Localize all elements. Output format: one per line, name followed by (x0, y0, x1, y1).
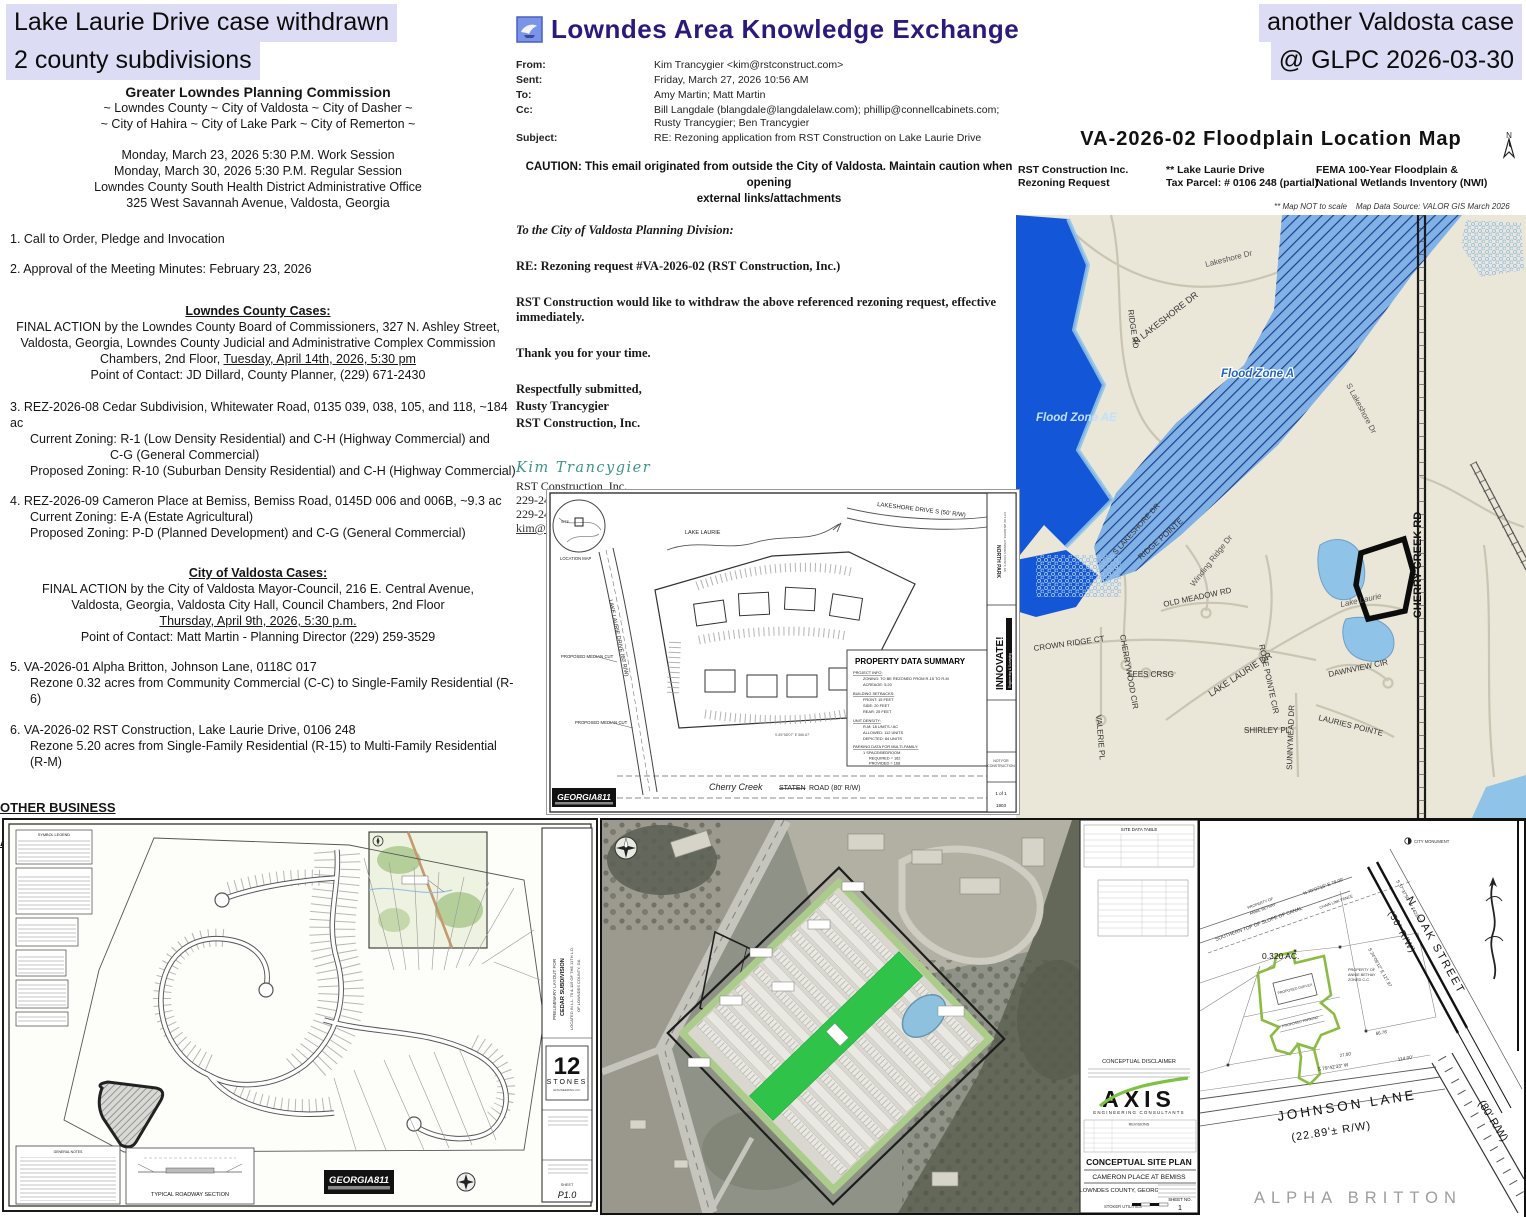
cherry-creek-script: Cherry Creek (709, 782, 763, 792)
pond-label-box (938, 1006, 964, 1016)
cedar-sheet-label: SHEET (561, 1183, 574, 1187)
floodmap-fema1: FEMA 100-Year Floodplain & (1316, 164, 1526, 177)
agenda-venue1: Lowndes County South Health District Adm… (0, 179, 516, 195)
alpha-britton-survey-panel: N. OAK STREET (50' R/W) (80' R/W) JOHNSO… (1200, 818, 1526, 1217)
agenda-item-4-proposed: Proposed Zoning: P-D (Planned Developmen… (0, 525, 516, 541)
pds-line: 1 SPACE/BEDROOM (863, 750, 900, 755)
county-cases-header: Lowndes County Cases: (0, 303, 516, 319)
agenda-item-5-rezone: Rezone 0.32 acres from Community Commerc… (0, 675, 516, 707)
pds-line: PROJECT INFO: (853, 670, 883, 675)
sheet-no-label: SHEET NO. (1168, 1197, 1192, 1202)
pds-title: PROPERTY DATA SUMMARY (855, 657, 966, 666)
field-label-sent: Sent: (516, 74, 654, 87)
typical-roadway-section: TYPICAL ROADWAY SECTION (126, 1148, 254, 1204)
axis-text: AXIS (1102, 1086, 1176, 1112)
trs-label: TYPICAL ROADWAY SECTION (151, 1192, 229, 1198)
field-value-to: Amy Martin; Matt Martin (654, 89, 1014, 102)
field-label-from: From: (516, 59, 654, 72)
annotation-top-left: Lake Laurie Drive case withdrawn 2 count… (6, 4, 397, 80)
nwi-wetland-fringe (1036, 555, 1121, 597)
disclaimer-text-lines (1088, 1068, 1190, 1080)
stones-eng-text: ENGINEERING CO. (553, 1088, 580, 1092)
cedar-georgia811-text: GEORGIA811 (329, 1175, 389, 1186)
revisions-title: REVISIONS (1129, 1123, 1150, 1127)
county-intro2: Valdosta, Georgia, Lowndes County Judici… (0, 335, 516, 351)
field-value-sent: Friday, March 27, 2026 10:56 AM (654, 74, 1014, 87)
agenda-title: Greater Lowndes Planning Commission (0, 84, 516, 100)
not-for-1: NOT FOR (993, 759, 1009, 763)
agenda-subtitle1: ~ Lowndes County ~ City of Valdosta ~ Ci… (0, 100, 516, 116)
agenda-item-5: 5. VA-2026-01 Alpha Britton, Johnson Lan… (0, 659, 516, 675)
alpha-britton-label: ALPHA BRITTON (1254, 1189, 1462, 1207)
north-arrow-icon: N (1494, 130, 1524, 164)
county-intro3-pre: Chambers, 2nd Floor, (100, 352, 223, 366)
county-contact: Point of Contact: JD Dillard, County Pla… (0, 367, 516, 383)
agenda-item-3: 3. REZ-2026-08 Cedar Subdivision, Whitew… (0, 399, 516, 431)
twelve-stones-logo: 12 STONES ENGINEERING CO. (546, 1046, 588, 1100)
axis-sub-text: ENGINEERING CONSULTANTS (1093, 1110, 1185, 1115)
caution-line1: CAUTION: This email originated from outs… (526, 161, 1013, 189)
floodmap-note-source: Map Data Source: VALOR GIS March 2026 (1356, 202, 1510, 211)
field-value-from: Kim Trancygier <kim@rstconstruct.com> (654, 59, 1014, 72)
agenda-session2: Monday, March 30, 2026 5:30 P.M. Regular… (0, 163, 516, 179)
csp-title: CONCEPTUAL SITE PLAN (1086, 1157, 1192, 1167)
glpc-agenda-document: Greater Lowndes Planning Commission ~ Lo… (0, 80, 516, 850)
email-re-line: RE: Rezoning request #VA-2026-02 (RST Co… (516, 259, 1022, 274)
other-business-header: OTHER BUSINESS (0, 800, 516, 816)
field-label-cc: Cc: (516, 104, 654, 130)
email-brand-title: Lowndes Area Knowledge Exchange (551, 14, 1019, 45)
prop-of-label2: PROPERTY OF (1348, 968, 1376, 972)
cedar-subdivision-plan-panel: SYMBOL LEGEND (2, 818, 598, 1212)
annotation-line4: @ GLPC 2026-03-30 (1271, 42, 1522, 80)
agenda-session1: Monday, March 23, 2026 5:30 P.M. Work Se… (0, 147, 516, 163)
email-withdraw-line: RST Construction would like to withdraw … (516, 295, 1022, 325)
sheet-no-value: 1 (1178, 1203, 1182, 1212)
pds-line: ALLOWED: 112 UNITS (863, 730, 904, 735)
floodmap-request-type: Rezoning Request (1018, 177, 1158, 190)
cameron-compass-icon (615, 837, 637, 859)
county-meeting-date: Tuesday, April 14th, 2026, 5:30 pm (223, 352, 415, 366)
pds-line: ACREAGE: 5.20 (863, 682, 893, 687)
agenda-item-6: 6. VA-2026-02 RST Construction, Lake Lau… (0, 722, 516, 738)
floodmap-applicant: RST Construction Inc. (1018, 164, 1158, 177)
agenda-item-3-zoning2: C-G (General Commercial) (0, 447, 516, 463)
city-cases-header: City of Valdosta Cases: (0, 565, 516, 581)
pds-line: UNIT DENSITY: (853, 718, 881, 723)
agenda-item-2: 2. Approval of the Meeting Minutes: Febr… (0, 261, 516, 277)
floodmap-address: ** Lake Laurie Drive (1166, 164, 1326, 177)
email-closing-company: RST Construction, Inc. (516, 416, 1022, 431)
pds-line: R-M: 18 UNITS / AC (863, 724, 898, 729)
email-salutation: To the City of Valdosta Planning Divisio… (516, 223, 1022, 238)
scale-bar (1132, 1203, 1168, 1206)
north-park-location: CITY OF VALDOSTA, LOWNDES COUNTY, GA (1003, 512, 1007, 572)
email-closing: Respectfully submitted, (516, 382, 1022, 397)
cedar-sheet-no: P1.0 (558, 1190, 577, 1200)
concept-site-plan-panel: SITE LOCATION MAP LAKE LAURIE LAKESHORE … (546, 489, 1020, 815)
road80-label: ROAD (80' R/W) (809, 785, 861, 792)
concept-sheet: 1 of 1 (995, 791, 1007, 796)
caution-banner: CAUTION: This email originated from outs… (516, 159, 1022, 207)
pds-line: DEPICTED: 84 UNITS (863, 736, 902, 741)
floodmap-title: VA-2026-02 Floodplain Location Map (1016, 128, 1526, 151)
agenda-venue2: 325 West Savannah Avenue, Valdosta, Geor… (0, 195, 516, 211)
city-intro1: FINAL ACTION by the City of Valdosta May… (0, 581, 516, 597)
pds-line: SIDE: 20 FEET (863, 703, 890, 708)
floodmap-notes: ** Map NOT to scale Map Data Source: VAL… (1274, 202, 1526, 211)
floodmap-parcel: Tax Parcel: # 0106 248 (partial) (1166, 177, 1326, 190)
stones-text: STONES (547, 1079, 588, 1086)
annotation-line3: another Valdosta case (1259, 4, 1522, 42)
city-contact: Point of Contact: Matt Martin - Planning… (0, 629, 516, 645)
cedar-vicinity-map (369, 832, 487, 948)
north-park-label: NORTH PARK (995, 545, 1001, 578)
floodplain-map-panel: VA-2026-02 Floodplain Location Map N RST… (1016, 128, 1526, 820)
pds-line: PARKING DATA FOR MULTI-FAMILY: (853, 744, 918, 749)
cedar-notes-title: GENERAL NOTES (54, 1150, 83, 1154)
georgia811-text: GEORGIA811 (557, 792, 611, 802)
location-map-label: LOCATION MAP (560, 556, 592, 561)
email-closing-name: Rusty Trancygier (516, 399, 1022, 414)
label-shirley: SHIRLEY PL (1244, 726, 1291, 735)
pds-line: FRONT: 15 FEET (863, 697, 894, 702)
project-name: CAMERON PLACE AT BEMISS (1092, 1174, 1186, 1181)
annie-bethay-label: ANNIE BETHAY (1348, 973, 1376, 977)
signature-name: Kim Trancygier (516, 461, 1022, 475)
site-data-table-title: SITE DATA TABLE (1121, 827, 1158, 832)
cedar-title-2: CEDAR SUBDIVISION (560, 958, 566, 1016)
innovate-logo: INNOVATE! (995, 636, 1006, 690)
field-value-subject: RE: Rezoning application from RST Constr… (654, 132, 1014, 145)
floodmap-fema2: National Wetlands Inventory (NWI) (1316, 177, 1526, 190)
annotation-line1: Lake Laurie Drive case withdrawn (6, 4, 397, 42)
cedar-legend-title: SYMBOL LEGEND (38, 833, 71, 837)
label-flood-zone-a: Flood Zone A (1221, 368, 1294, 380)
lake-laurie-label: LAKE LAURIE (685, 530, 721, 536)
innovate-sub: Engineering & Surveying (1008, 653, 1012, 688)
label-flood-zone-ae: Flood Zone AE (1036, 412, 1117, 424)
bearing-bottom: S 89°58'07" E 566.67' (775, 733, 810, 737)
median-cut-label-2: PROPOSED MEDIAN CUT (575, 720, 628, 725)
acreage-label: 0.320 AC. (1262, 951, 1299, 961)
agenda-item-4-zoning: Current Zoning: E-A (Estate Agricultural… (0, 509, 516, 525)
cedar-georgia811-logo: GEORGIA811 (324, 1170, 394, 1194)
lake-logo-icon (516, 16, 543, 43)
email-panel: Lowndes Area Knowledge Exchange From: Ki… (516, 14, 1022, 535)
annotation-line2: 2 county subdivisions (6, 42, 260, 80)
floodplain-map-canvas: Lakeshore Dr N LAKESHORE DR RIDGE RD S L… (1016, 215, 1526, 820)
twelve-text: 12 (554, 1053, 581, 1080)
agenda-item-1: 1. Call to Order, Pledge and Invocation (0, 231, 516, 247)
staten-strikethrough: STATEN (779, 785, 806, 792)
median-cut-label-1: PROPOSED MEDIAN CUT (561, 654, 614, 659)
email-thanks-line: Thank you for your time. (516, 346, 1022, 361)
city-monument-label: CITY MONUMENT (1414, 839, 1450, 844)
cedar-pond (99, 1082, 162, 1147)
cedar-title-1: PRELIMINARY LAYOUT FOR (552, 958, 557, 1020)
agenda-item-4: 4. REZ-2026-09 Cameron Place at Bemiss, … (0, 493, 516, 509)
city-intro2: Valdosta, Georgia, Valdosta City Hall, C… (0, 597, 516, 613)
cameron-title-block: SITE DATA TABLE CONCEPTUAL DI (1080, 820, 1198, 1213)
agenda-item-3-zoning: Current Zoning: R-1 (Low Density Residen… (0, 431, 516, 447)
agenda-item-3-proposed: Proposed Zoning: R-10 (Suburban Density … (0, 463, 516, 479)
concept-proj-no: 1903 (996, 803, 1007, 808)
city-meeting-date: Thursday, April 9th, 2026, 5:30 p.m. (0, 613, 516, 629)
property-data-summary: PROPERTY DATA SUMMARY PROJECT INFO: ZONI… (847, 650, 989, 766)
field-label-subject: Subject: (516, 132, 654, 145)
cedar-legend-notes (16, 830, 92, 1026)
disclaimer-title: CONCEPTUAL DISCLAIMER (1102, 1059, 1176, 1065)
cameron-aerial-panel: SITE DATA TABLE CONCEPTUAL DI (600, 818, 1200, 1215)
cedar-title-3: LOCATED IN L.L. 70 & 115 OF THE 11TH L.D… (569, 947, 574, 1030)
concept-title-block: NORTH PARK CITY OF VALDOSTA, LOWNDES COU… (987, 493, 1016, 812)
cedar-compass-icon (457, 1173, 475, 1191)
agenda-item-6-rezone: Rezone 5.20 acres from Single-Family Res… (0, 738, 516, 770)
not-for-2: CONSTRUCTION (987, 764, 1015, 768)
cedar-title-4: OF LOWNDES COUNTY, GA (576, 959, 581, 1012)
email-header-fields: From: Kim Trancygier <kim@rstconstruct.c… (516, 59, 1022, 145)
survey-sheet (1200, 821, 1524, 1217)
zoned-label: ZONED C-C (1348, 978, 1369, 982)
annotation-top-right: another Valdosta case @ GLPC 2026-03-30 (1259, 4, 1522, 80)
pds-line: BUILDING SETBACKS: (853, 691, 894, 696)
pds-line: REAR: 25 FEET (863, 709, 892, 714)
email-body: To the City of Valdosta Planning Divisio… (516, 223, 1022, 431)
field-value-cc: Bill Langdale (blangdale@langdalelaw.com… (654, 104, 1014, 130)
pds-line: PROVIDED = 168 (869, 761, 900, 766)
agenda-subtitle2: ~ City of Hahira ~ City of Lake Park ~ C… (0, 116, 516, 132)
county-intro3: Chambers, 2nd Floor, Tuesday, April 14th… (0, 351, 516, 367)
georgia811-logo: GEORGIA811 (552, 788, 616, 807)
county-intro1: FINAL ACTION by the Lowndes County Board… (0, 319, 516, 335)
floodmap-note-scale: ** Map NOT to scale (1274, 202, 1347, 211)
cedar-title-block: PRELIMINARY LAYOUT FOR CEDAR SUBDIVISION… (542, 828, 592, 1202)
field-label-to: To: (516, 89, 654, 102)
label-cherry-creek-rd: CHERRY CREEK RD (1412, 512, 1424, 618)
caution-line2: external links/attachments (697, 193, 841, 205)
cedar-general-notes: GENERAL NOTES (16, 1146, 120, 1204)
county-label: LOWNDES COUNTY, GEORGIA (1080, 1188, 1165, 1194)
label-lees-crsg: LEES CRSG (1128, 670, 1174, 679)
pds-line: ZONING: TO BE REZONED FROM R-15 TO R-M (863, 676, 949, 681)
site-label: SITE (561, 520, 570, 524)
